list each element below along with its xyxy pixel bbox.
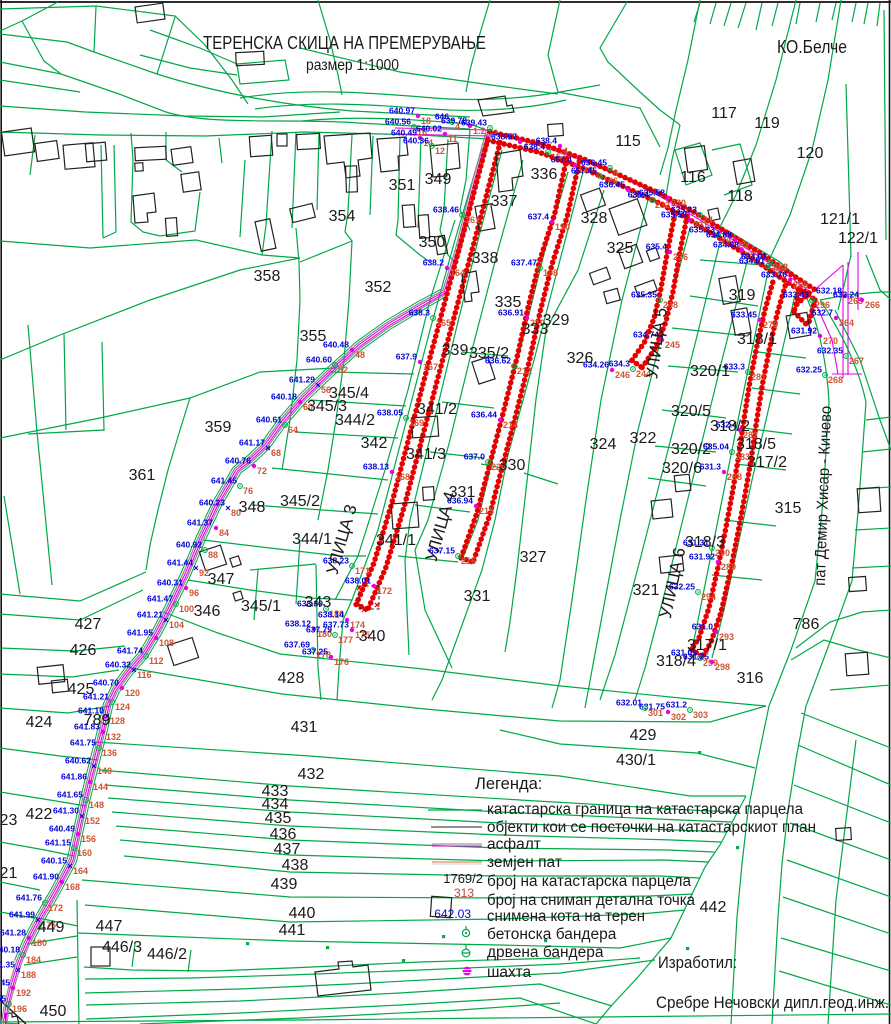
svg-text:641.30: 641.30	[53, 806, 79, 816]
svg-text:број на сниман детална точка: број на сниман детална точка	[487, 892, 695, 909]
svg-text:317/1: 317/1	[687, 637, 727, 654]
svg-text:441: 441	[279, 922, 306, 939]
svg-text:216: 216	[461, 556, 476, 566]
svg-text:асфалт: асфалт	[487, 836, 541, 853]
svg-text:68: 68	[271, 448, 281, 458]
svg-text:232: 232	[655, 200, 670, 210]
svg-text:302: 302	[671, 712, 686, 722]
svg-text:641.28: 641.28	[0, 928, 26, 938]
svg-text:641.76: 641.76	[16, 893, 42, 903]
svg-text:422: 422	[26, 806, 53, 823]
svg-text:8: 8	[613, 168, 618, 178]
svg-text:450: 450	[40, 1003, 67, 1020]
svg-text:640.76: 640.76	[225, 456, 251, 466]
svg-text:264: 264	[839, 318, 854, 328]
svg-text:638.3: 638.3	[409, 308, 431, 318]
svg-text:341/3: 341/3	[406, 446, 446, 463]
svg-text:641.35: 641.35	[0, 960, 15, 970]
svg-text:294: 294	[701, 592, 716, 602]
svg-text:318/2: 318/2	[710, 418, 750, 435]
svg-text:324: 324	[590, 436, 617, 453]
svg-text:638.57: 638.57	[491, 132, 517, 142]
svg-text:640.36: 640.36	[403, 136, 429, 146]
svg-text:437: 437	[274, 841, 301, 858]
svg-text:115: 115	[615, 133, 641, 150]
svg-text:641.21: 641.21	[137, 610, 163, 620]
svg-text:343: 343	[305, 594, 332, 611]
svg-text:190: 190	[555, 222, 570, 232]
svg-text:423: 423	[0, 812, 17, 829]
svg-text:330: 330	[499, 457, 526, 474]
svg-text:427: 427	[75, 616, 102, 633]
svg-text:635.35: 635.35	[631, 290, 657, 300]
svg-text:640.32: 640.32	[105, 660, 131, 670]
svg-text:640.62: 640.62	[65, 756, 91, 766]
svg-text:637.47: 637.47	[511, 258, 537, 268]
svg-text:255: 255	[793, 280, 808, 290]
svg-text:177: 177	[338, 635, 353, 645]
svg-text:64: 64	[288, 425, 298, 435]
svg-text:164: 164	[450, 268, 465, 278]
svg-text:641.37: 641.37	[187, 518, 213, 528]
svg-text:350: 350	[419, 234, 446, 251]
svg-text:118: 118	[727, 188, 753, 205]
svg-text:320/2: 320/2	[671, 441, 711, 458]
svg-text:636.45: 636.45	[599, 180, 625, 190]
svg-text:641.74: 641.74	[117, 646, 143, 656]
svg-text:342: 342	[361, 435, 388, 452]
svg-text:124: 124	[115, 702, 130, 712]
svg-text:121/1: 121/1	[820, 211, 860, 228]
svg-text:440: 440	[289, 905, 316, 922]
svg-text:345/1: 345/1	[241, 598, 281, 615]
svg-text:640.97: 640.97	[389, 106, 415, 116]
svg-text:327: 327	[520, 549, 547, 566]
svg-text:336: 336	[531, 166, 558, 183]
svg-text:632.24: 632.24	[833, 290, 859, 300]
svg-text:640.61: 640.61	[256, 415, 282, 425]
svg-text:338: 338	[472, 250, 499, 267]
svg-text:1.2: 1.2	[473, 126, 486, 136]
svg-text:76: 76	[243, 486, 253, 496]
svg-text:634.01: 634.01	[741, 252, 767, 262]
svg-text:120: 120	[797, 145, 824, 162]
svg-text:641.45: 641.45	[211, 476, 237, 486]
svg-text:641.75: 641.75	[70, 738, 96, 748]
svg-text:246: 246	[615, 370, 630, 380]
svg-text:636.44: 636.44	[471, 410, 497, 420]
svg-text:340: 340	[359, 628, 386, 645]
svg-text:638.4: 638.4	[536, 136, 558, 146]
svg-text:315: 315	[775, 500, 802, 517]
svg-text:438: 438	[282, 857, 309, 874]
svg-text:439: 439	[271, 876, 298, 893]
svg-text:188: 188	[21, 970, 36, 980]
svg-text:640.60: 640.60	[306, 355, 332, 365]
svg-text:632.01: 632.01	[616, 698, 642, 708]
svg-text:449: 449	[38, 919, 65, 936]
svg-text:270: 270	[823, 336, 838, 346]
svg-text:212: 212	[517, 366, 532, 376]
svg-text:637.73: 637.73	[323, 620, 349, 630]
svg-text:335/2: 335/2	[469, 345, 509, 362]
svg-text:639.43: 639.43	[461, 118, 487, 128]
svg-text:640.31: 640.31	[157, 578, 183, 588]
svg-text:198: 198	[543, 268, 558, 278]
svg-text:180: 180	[32, 938, 47, 948]
svg-text:637.9: 637.9	[396, 352, 418, 362]
svg-text:245: 245	[665, 340, 680, 350]
svg-text:318/3: 318/3	[685, 534, 725, 551]
svg-text:345/2: 345/2	[280, 493, 320, 510]
svg-text:267: 267	[849, 356, 864, 366]
svg-text:252: 252	[773, 262, 788, 272]
svg-text:446/2: 446/2	[147, 946, 187, 963]
svg-text:156: 156	[81, 834, 96, 844]
svg-text:346: 346	[194, 603, 221, 620]
svg-text:119: 119	[754, 115, 780, 132]
svg-text:319: 319	[729, 287, 756, 304]
svg-text:148: 148	[89, 800, 104, 810]
svg-text:635.4: 635.4	[646, 242, 668, 252]
svg-text:168: 168	[395, 472, 410, 482]
svg-text:641.95: 641.95	[127, 628, 153, 638]
svg-text:214: 214	[503, 420, 518, 430]
svg-text:дрвена бандера: дрвена бандера	[487, 944, 604, 961]
svg-text:11: 11	[448, 134, 458, 144]
svg-text:349: 349	[425, 171, 452, 188]
svg-text:431: 431	[291, 719, 318, 736]
svg-text:429: 429	[630, 727, 657, 744]
svg-text:172: 172	[48, 903, 63, 913]
svg-text:266: 266	[865, 300, 880, 310]
svg-text:72: 72	[257, 466, 267, 476]
svg-text:640.49: 640.49	[49, 824, 75, 834]
svg-text:633.45: 633.45	[731, 310, 757, 320]
svg-text:640.92: 640.92	[176, 540, 202, 550]
svg-text:640.18: 640.18	[271, 392, 297, 402]
svg-text:140: 140	[97, 766, 112, 776]
svg-text:КО.Белче: КО.Белче	[777, 37, 847, 57]
svg-text:447: 447	[96, 918, 123, 935]
svg-text:446/3: 446/3	[102, 939, 142, 956]
svg-text:303: 303	[693, 710, 708, 720]
svg-text:640.56: 640.56	[385, 117, 411, 127]
svg-text:632.25: 632.25	[796, 365, 822, 375]
svg-text:641.29: 641.29	[289, 375, 315, 385]
svg-text:329: 329	[543, 312, 570, 329]
svg-text:176: 176	[334, 657, 349, 667]
svg-text:катастарска граница на катаста: катастарска граница на катастарска парце…	[487, 801, 803, 818]
svg-text:344/1: 344/1	[292, 531, 332, 548]
svg-text:169: 169	[409, 418, 424, 428]
svg-text:641.44: 641.44	[167, 558, 193, 568]
svg-text:52: 52	[338, 365, 348, 375]
svg-text:638.13: 638.13	[363, 462, 389, 472]
svg-text:318/1: 318/1	[737, 331, 777, 348]
svg-text:171: 171	[355, 566, 370, 576]
svg-text:637.4: 637.4	[528, 212, 550, 222]
svg-text:317/2: 317/2	[747, 454, 787, 471]
svg-text:641.17: 641.17	[239, 438, 265, 448]
svg-text:638.2: 638.2	[423, 258, 445, 268]
svg-text:344/2: 344/2	[335, 412, 375, 429]
svg-text:152: 152	[85, 816, 100, 826]
svg-text:112: 112	[149, 656, 164, 666]
svg-text:638.46: 638.46	[433, 205, 459, 215]
svg-text:634.88: 634.88	[706, 230, 732, 240]
svg-text:164: 164	[73, 866, 88, 876]
svg-text:657.4: 657.4	[551, 155, 573, 165]
svg-text:279: 279	[763, 320, 778, 330]
svg-text:298: 298	[715, 662, 730, 672]
svg-text:120: 120	[125, 688, 140, 698]
svg-text:358: 358	[254, 268, 281, 285]
svg-text:168: 168	[65, 882, 80, 892]
svg-text:635.58: 635.58	[639, 188, 665, 198]
svg-text:631.92: 631.92	[689, 552, 715, 562]
svg-text:316: 316	[737, 670, 764, 687]
svg-text:281: 281	[751, 372, 766, 382]
svg-text:641.65: 641.65	[57, 790, 83, 800]
svg-text:351: 351	[389, 177, 416, 194]
svg-text:361: 361	[129, 467, 156, 484]
svg-text:Изработил:: Изработил:	[658, 953, 737, 972]
svg-text:325: 325	[607, 240, 634, 257]
svg-text:288: 288	[727, 472, 742, 482]
svg-text:640.48: 640.48	[323, 340, 349, 350]
svg-text:Сребре Нечовски дипл.геод.инж.: Сребре Нечовски дипл.геод.инж.	[656, 993, 889, 1012]
svg-text:642.03: 642.03	[434, 907, 471, 921]
svg-text:641.47: 641.47	[147, 594, 173, 604]
svg-text:640.23: 640.23	[199, 498, 225, 508]
svg-text:116: 116	[137, 670, 152, 680]
svg-text:341/2: 341/2	[417, 401, 457, 418]
svg-text:347: 347	[208, 571, 235, 588]
svg-text:641.15: 641.15	[45, 838, 71, 848]
svg-text:160: 160	[77, 848, 92, 858]
svg-text:640.70: 640.70	[93, 678, 119, 688]
svg-text:122/1: 122/1	[838, 230, 878, 247]
svg-text:бетонска бандера: бетонска бандера	[487, 926, 617, 943]
svg-text:354: 354	[329, 208, 356, 225]
svg-text:425: 425	[68, 681, 95, 698]
svg-text:326: 326	[567, 350, 594, 367]
svg-text:435: 435	[265, 810, 292, 827]
svg-text:167: 167	[423, 362, 438, 372]
svg-text:640.15: 640.15	[41, 856, 67, 866]
svg-text:328: 328	[581, 210, 608, 227]
svg-text:348: 348	[239, 499, 266, 516]
svg-text:100: 100	[179, 604, 194, 614]
svg-text:632.7: 632.7	[812, 308, 834, 318]
svg-text:301: 301	[648, 708, 663, 718]
svg-text:442: 442	[700, 899, 727, 916]
svg-text:25: 25	[738, 240, 748, 250]
svg-text:196: 196	[12, 1004, 27, 1014]
svg-text:136: 136	[102, 748, 117, 758]
svg-text:341/1: 341/1	[376, 532, 416, 549]
svg-text:421: 421	[0, 865, 17, 882]
svg-text:641.45: 641.45	[0, 978, 10, 988]
svg-text:637.0: 637.0	[464, 452, 486, 462]
svg-text:638.14: 638.14	[318, 610, 344, 620]
svg-text:96: 96	[189, 588, 199, 598]
svg-text:објекти кои се посточки на кат: објекти кои се посточки на катастарскиот…	[487, 819, 816, 836]
svg-text:359: 359	[205, 419, 232, 436]
svg-text:172: 172	[377, 586, 392, 596]
svg-text:број на катастарска парцела: број на катастарска парцела	[487, 873, 691, 890]
svg-text:631.2: 631.2	[666, 700, 688, 710]
svg-text:размер 1:1000: размер 1:1000	[306, 57, 399, 74]
svg-text:633.43: 633.43	[783, 290, 809, 300]
svg-text:322: 322	[630, 430, 657, 447]
svg-text:4: 4	[563, 146, 568, 156]
svg-text:24: 24	[703, 215, 713, 225]
svg-text:161: 161	[465, 215, 480, 225]
svg-text:116: 116	[680, 169, 706, 186]
svg-text:641.90: 641.90	[33, 872, 59, 882]
svg-text:144: 144	[93, 782, 108, 792]
svg-text:318/4: 318/4	[656, 653, 696, 670]
svg-text:631.0: 631.0	[692, 622, 714, 632]
svg-text:789: 789	[84, 712, 111, 729]
svg-text:331: 331	[464, 588, 491, 605]
svg-text:428: 428	[278, 670, 305, 687]
svg-text:424: 424	[26, 714, 53, 731]
svg-text:1769/2: 1769/2	[443, 871, 483, 886]
svg-text:432: 432	[298, 766, 325, 783]
svg-text:289: 289	[721, 562, 736, 572]
svg-text:268: 268	[828, 375, 843, 385]
svg-text:631.3: 631.3	[700, 462, 722, 472]
svg-text:335: 335	[495, 294, 522, 311]
svg-text:165: 165	[436, 318, 451, 328]
svg-text:355: 355	[300, 328, 327, 345]
svg-text:88: 88	[208, 550, 218, 560]
svg-text:786: 786	[793, 616, 820, 633]
svg-text:640.18: 640.18	[0, 945, 20, 955]
svg-text:318/5: 318/5	[736, 436, 776, 453]
svg-text:Легенда:: Легенда:	[475, 775, 542, 793]
svg-text:84: 84	[219, 528, 229, 538]
svg-text:636.45: 636.45	[581, 158, 607, 168]
svg-text:земјен пат: земјен пат	[487, 854, 562, 871]
svg-text:641.99: 641.99	[9, 910, 35, 920]
svg-text:117: 117	[711, 105, 737, 122]
svg-text:132: 132	[106, 732, 121, 742]
svg-text:631.92: 631.92	[791, 326, 817, 336]
svg-text:320/5: 320/5	[671, 403, 711, 420]
svg-text:638.01: 638.01	[345, 576, 371, 586]
svg-text:321: 321	[633, 582, 660, 599]
svg-text:215: 215	[479, 506, 494, 516]
svg-text:184: 184	[26, 955, 41, 965]
svg-text:320/6: 320/6	[662, 460, 702, 477]
svg-text:634.3: 634.3	[609, 359, 631, 369]
svg-text:ТЕРЕНСКА СКИЦА НА ПРЕМЕРУВАЊЕ: ТЕРЕНСКА СКИЦА НА ПРЕМЕРУВАЊЕ	[203, 32, 486, 53]
svg-text:192: 192	[16, 988, 31, 998]
svg-text:640.02: 640.02	[416, 124, 442, 134]
svg-text:12: 12	[435, 146, 445, 156]
svg-text:313: 313	[454, 886, 474, 900]
svg-text:426: 426	[70, 642, 97, 659]
svg-text:128: 128	[110, 716, 125, 726]
svg-text:430/1: 430/1	[616, 752, 656, 769]
svg-text:108: 108	[159, 638, 174, 648]
svg-text:236: 236	[673, 252, 688, 262]
svg-text:337: 337	[491, 193, 518, 210]
svg-text:638.05: 638.05	[377, 408, 403, 418]
svg-text:снимена кота на терен: снимена кота на терен	[487, 908, 645, 925]
svg-text:48: 48	[355, 350, 365, 360]
svg-text:640.55: 640.55	[0, 994, 6, 1004]
svg-text:632.35: 632.35	[817, 346, 843, 356]
svg-text:641.86: 641.86	[61, 772, 87, 782]
svg-text:104: 104	[169, 620, 184, 630]
svg-text:шахта: шахта	[487, 964, 532, 981]
svg-text:339: 339	[442, 342, 469, 359]
svg-text:635.23: 635.23	[671, 205, 697, 215]
svg-text:637.25: 637.25	[302, 647, 328, 657]
svg-text:352: 352	[365, 279, 392, 296]
svg-text:320/1: 320/1	[690, 363, 730, 380]
